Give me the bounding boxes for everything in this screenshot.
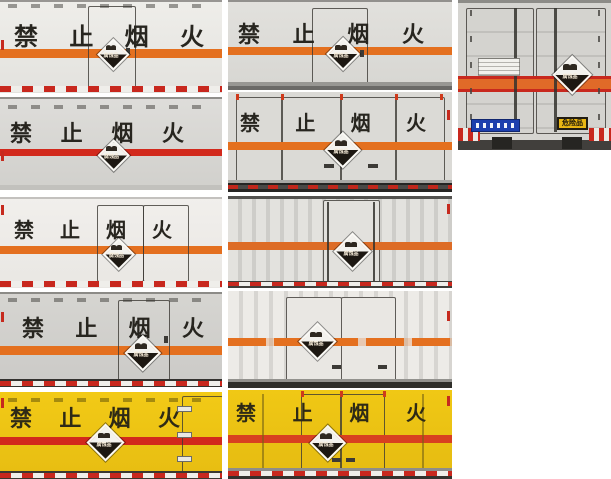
ban-char: 禁 bbox=[236, 404, 256, 424]
ban-text: 禁 止 烟 火 bbox=[228, 404, 452, 424]
hinge-column bbox=[598, 10, 600, 130]
chassis-shadow bbox=[228, 86, 452, 90]
ban-char: 止 bbox=[61, 123, 83, 145]
corrosive-placard-icon: 腐蚀品 bbox=[88, 425, 120, 457]
ban-char: 烟 bbox=[125, 26, 149, 50]
door bbox=[143, 205, 189, 282]
red-edge-mark bbox=[1, 398, 4, 408]
ban-char: 火 bbox=[406, 114, 426, 134]
red-edge-mark bbox=[447, 396, 450, 406]
reflective-strip bbox=[0, 86, 222, 92]
truck-photo-side-white-doors: 禁 止 烟 火 腐蚀品 bbox=[0, 197, 222, 288]
red-edge-mark bbox=[1, 312, 4, 322]
reflective-corner bbox=[589, 128, 611, 141]
ban-char: 火 bbox=[180, 26, 204, 50]
ban-char: 止 bbox=[293, 404, 313, 424]
ban-char: 止 bbox=[75, 318, 97, 340]
hazard-stripe bbox=[0, 346, 222, 355]
ban-char: 禁 bbox=[240, 114, 260, 134]
lock-rod bbox=[327, 202, 329, 284]
door-hinge bbox=[177, 456, 192, 462]
corrosive-placard-icon: 腐蚀品 bbox=[335, 234, 367, 266]
corrosive-placard-icon: 腐蚀品 bbox=[300, 324, 332, 356]
vent-row bbox=[8, 105, 214, 109]
ban-char: 止 bbox=[295, 114, 315, 134]
red-frame-mark bbox=[395, 94, 398, 100]
blue-company-plate bbox=[471, 119, 520, 132]
ban-char: 火 bbox=[182, 318, 204, 340]
corrosive-pictogram-icon bbox=[335, 140, 347, 145]
corrosive-pictogram-icon bbox=[111, 245, 122, 250]
placard-label: 腐蚀品 bbox=[98, 155, 125, 160]
hazard-stripe bbox=[228, 338, 452, 346]
door-latch bbox=[368, 164, 378, 168]
inspection-sticker bbox=[478, 58, 520, 76]
ban-char: 烟 bbox=[349, 404, 369, 424]
ban-char: 火 bbox=[162, 123, 184, 145]
reflective-strip bbox=[0, 381, 222, 386]
red-edge-mark bbox=[1, 151, 4, 161]
hinge-column bbox=[470, 10, 472, 130]
lock-rod bbox=[373, 202, 375, 284]
placard-label: 腐蚀品 bbox=[327, 54, 355, 59]
door-latch bbox=[332, 458, 341, 462]
box-top-edge bbox=[458, 0, 611, 3]
corrosive-placard-icon: 腐蚀品 bbox=[126, 336, 156, 366]
ban-text: 禁 止 烟 火 bbox=[0, 221, 222, 241]
truck-photo-side-yellow: 禁 止 烟 火 腐蚀品 bbox=[0, 392, 222, 479]
door-latch bbox=[346, 458, 355, 462]
box-top-edge bbox=[228, 196, 452, 199]
corrosive-placard-icon: 腐蚀品 bbox=[98, 39, 124, 65]
box-top-edge bbox=[0, 0, 222, 2]
ban-char: 烟 bbox=[106, 221, 126, 241]
red-frame-mark bbox=[340, 94, 343, 100]
placard-label: 腐蚀品 bbox=[126, 353, 156, 358]
door-latch bbox=[332, 365, 341, 369]
door-hinge bbox=[177, 406, 192, 412]
truck-photo-side-gray: 禁 止 烟 火 腐蚀品 bbox=[0, 97, 222, 190]
red-frame-mark bbox=[301, 391, 304, 397]
red-edge-mark bbox=[1, 205, 4, 215]
corrosive-placard-icon: 腐蚀品 bbox=[98, 140, 125, 167]
door-handle bbox=[360, 50, 364, 57]
tire bbox=[562, 137, 582, 149]
corrosive-pictogram-icon bbox=[310, 332, 323, 338]
door-hinge bbox=[177, 432, 192, 438]
ban-char: 禁 bbox=[14, 26, 38, 50]
placard-label: 腐蚀品 bbox=[326, 150, 356, 155]
ban-char: 禁 bbox=[22, 318, 44, 340]
truck-photo-side-white-1: 禁 止 烟 火 腐蚀品 bbox=[0, 0, 222, 93]
red-frame-mark bbox=[383, 391, 386, 397]
truck-photo-side-gray-door: 禁 止 烟 火 腐蚀品 bbox=[0, 292, 222, 387]
corrosive-pictogram-icon bbox=[106, 146, 117, 151]
corrosive-placard-icon: 腐蚀品 bbox=[103, 239, 130, 266]
vent-row bbox=[8, 298, 214, 302]
dangerous-goods-plate: 危险品 bbox=[557, 117, 588, 130]
reflective-strip bbox=[228, 471, 452, 476]
box-top-edge bbox=[228, 0, 452, 2]
truck-photo-side-white-2: 禁 止 烟 火 腐蚀品 bbox=[228, 0, 452, 90]
ban-char: 禁 bbox=[238, 24, 260, 46]
photo-grid: 禁 止 烟 火 腐蚀品 禁 止 烟 火 腐蚀品 bbox=[0, 0, 611, 479]
ban-char: 烟 bbox=[351, 114, 371, 134]
ban-char: 止 bbox=[69, 26, 93, 50]
red-edge-mark bbox=[1, 40, 4, 50]
corrosive-placard-icon: 腐蚀品 bbox=[326, 133, 356, 163]
truck-photo-side-corrugated: 腐蚀品 bbox=[228, 196, 452, 288]
tire bbox=[492, 137, 512, 149]
reflective-strip bbox=[0, 281, 222, 287]
corrosive-pictogram-icon bbox=[563, 64, 577, 70]
red-edge-mark bbox=[447, 110, 450, 120]
red-frame-mark bbox=[340, 391, 343, 397]
ban-char: 禁 bbox=[10, 408, 32, 430]
truck-photo-rear-view: 腐蚀品 危险品 bbox=[458, 0, 611, 150]
placard-label: 腐蚀品 bbox=[88, 443, 120, 448]
box-top-edge bbox=[0, 97, 222, 99]
truck-photo-side-corrugated-doors: 腐蚀品 bbox=[228, 291, 452, 388]
ban-char: 止 bbox=[60, 221, 80, 241]
red-frame-mark bbox=[281, 94, 284, 100]
reflective-strip bbox=[228, 185, 452, 189]
ban-char: 止 bbox=[293, 24, 315, 46]
ban-char: 火 bbox=[406, 404, 426, 424]
blue-plate-text-marks bbox=[476, 123, 516, 128]
ban-char: 止 bbox=[59, 408, 81, 430]
ban-text: 禁 止 烟 火 bbox=[228, 114, 452, 134]
ban-char: 火 bbox=[152, 221, 172, 241]
corrosive-placard-icon: 腐蚀品 bbox=[327, 38, 355, 66]
door-latch bbox=[378, 365, 387, 369]
corrosive-placard-icon: 腐蚀品 bbox=[311, 426, 341, 456]
corrosive-pictogram-icon bbox=[335, 45, 346, 50]
corrosive-pictogram-icon bbox=[98, 433, 111, 439]
red-frame-mark bbox=[236, 94, 239, 100]
placard-label: 腐蚀品 bbox=[103, 254, 130, 259]
corrosive-pictogram-icon bbox=[106, 45, 116, 50]
red-frame-mark bbox=[440, 94, 443, 100]
corrosive-pictogram-icon bbox=[345, 242, 358, 248]
bumper bbox=[458, 140, 611, 150]
red-edge-mark bbox=[447, 204, 450, 214]
truck-photo-rear-gray: 禁 止 烟 火 腐蚀品 bbox=[228, 92, 452, 192]
box-top-edge bbox=[0, 292, 222, 294]
box-top-edge bbox=[0, 197, 222, 199]
corrosive-placard-icon: 腐蚀品 bbox=[553, 56, 587, 90]
chassis-shadow bbox=[228, 382, 452, 388]
corrosive-pictogram-icon bbox=[320, 433, 332, 438]
ban-char: 禁 bbox=[14, 221, 34, 241]
placard-label: 腐蚀品 bbox=[300, 342, 332, 347]
ban-char: 火 bbox=[402, 24, 424, 46]
placard-label: 腐蚀品 bbox=[311, 443, 341, 448]
reflective-strip bbox=[0, 473, 222, 478]
placard-label: 腐蚀品 bbox=[553, 75, 587, 80]
corrosive-pictogram-icon bbox=[135, 343, 147, 348]
door-handle bbox=[164, 336, 168, 343]
placard-label: 腐蚀品 bbox=[335, 252, 367, 257]
truck-photo-rear-yellow: 禁 止 烟 火 腐蚀品 bbox=[228, 390, 452, 479]
ban-text: 禁 止 烟 火 bbox=[0, 318, 222, 340]
door-latch bbox=[324, 164, 334, 168]
red-edge-mark bbox=[447, 311, 450, 321]
ban-char: 禁 bbox=[10, 123, 32, 145]
chassis-rail bbox=[0, 185, 222, 190]
reflective-strip bbox=[228, 282, 452, 286]
placard-label: 腐蚀品 bbox=[98, 54, 124, 59]
